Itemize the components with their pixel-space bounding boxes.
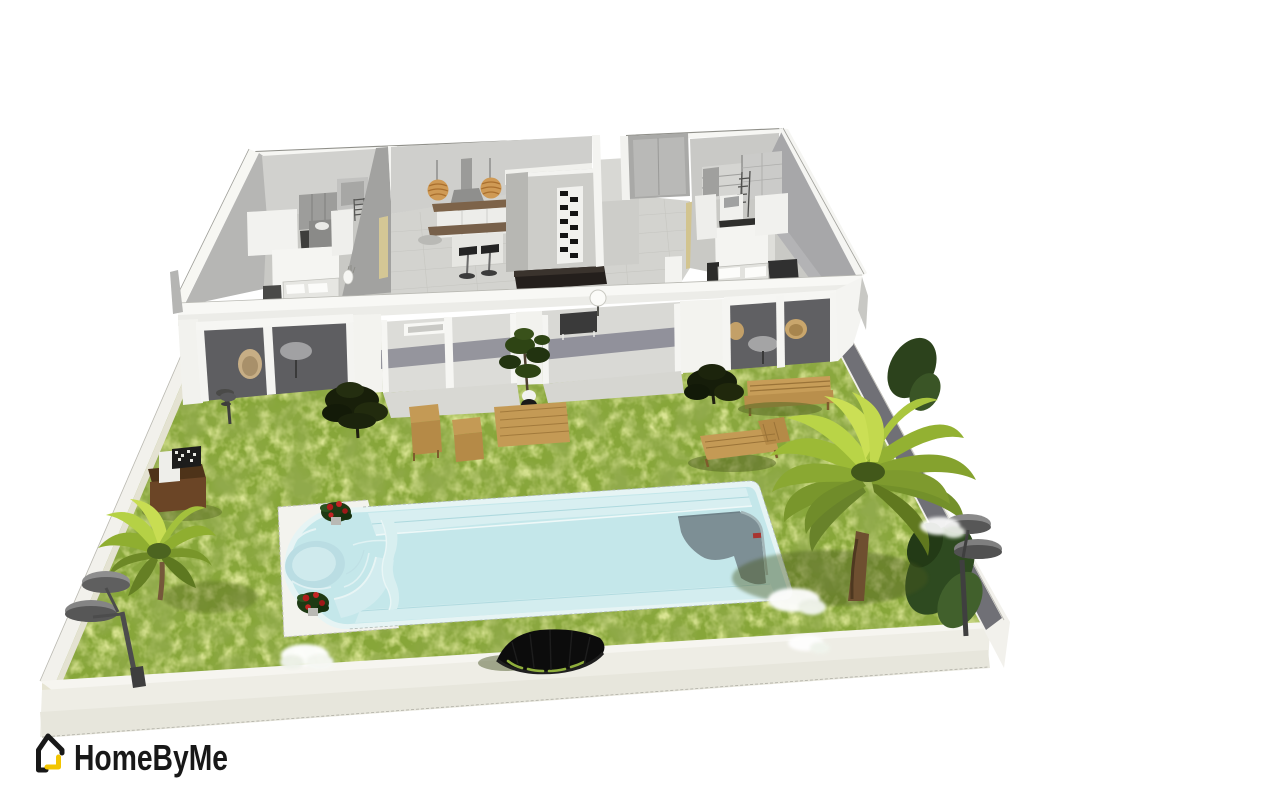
- svg-text:HomeByMe: HomeByMe: [74, 737, 228, 778]
